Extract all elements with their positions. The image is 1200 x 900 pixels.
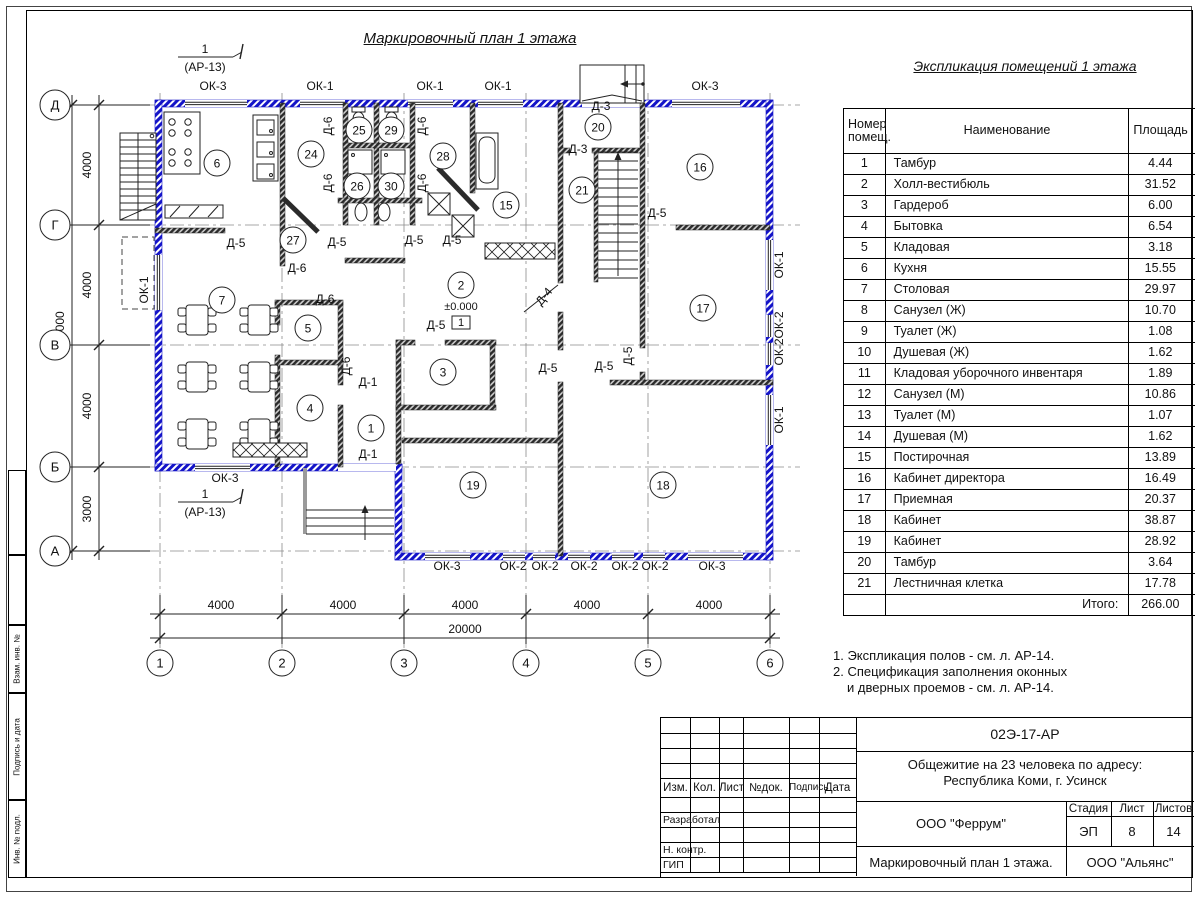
room-area-cell: 1.89 [1129,364,1192,385]
room-name-cell: Кладовая [885,238,1129,259]
schedule-row: 15Постирочная13.89 [844,448,1196,469]
cut-cell [1192,175,1195,196]
room-name-cell: Кабинет директора [885,469,1129,490]
cut-cell [1192,574,1195,595]
room-marker-number: 1 [368,422,375,436]
door-label: Д-6 [339,356,353,375]
grid-bubble-label: Б [51,460,60,475]
chair [240,324,248,332]
window-opening [478,100,523,107]
interior-wall [345,258,405,263]
tb-row-developed: Разработал [663,814,723,826]
tb-col-doc: №док. [743,782,789,794]
room-name-cell: Гардероб [885,196,1129,217]
schedule-row: 19Кабинет28.92 [844,532,1196,553]
chair [178,381,186,389]
chair [270,324,278,332]
window-label: ОК-1 [137,276,151,303]
notes: 1. Экспликация полов - см. л. АР-14.2. С… [833,648,1067,696]
door-label: Д-5 [621,346,635,365]
margin-box-podpis: Подпись и дата [8,693,26,800]
margin-box-inv: Инв. № подл. [8,800,26,878]
schedule-row: 9Туалет (Ж)1.08 [844,322,1196,343]
schedule-row: 18Кабинет38.87 [844,511,1196,532]
section-ref: (АР-13) [184,505,225,519]
chair [270,381,278,389]
tb-col-izm: Изм. [661,782,690,794]
window-opening [185,100,247,107]
cut-cell [1192,469,1195,490]
window-opening [155,255,162,310]
room-area-cell: 17.78 [1129,574,1192,595]
dim-label: 4000 [208,598,235,612]
room-name-cell: Санузел (М) [885,385,1129,406]
dining-table [248,305,270,335]
dim-label: 4000 [574,598,601,612]
interior-wall [490,340,495,410]
tb-sheet-label: Лист [1111,803,1153,815]
col-header-cut: Капо [1192,109,1195,154]
window-label: ОК-3 [434,559,461,573]
room-number-cell: 12 [844,385,886,406]
tb-sheets-label: Листов [1153,803,1194,815]
chair [208,438,216,446]
chair [240,308,248,316]
room-area-cell: 4.44 [1129,154,1192,175]
schedule-row: 5Кладовая3.18 [844,238,1196,259]
door-label: Д-5 [227,236,246,250]
room-name-cell: Кабинет [885,511,1129,532]
room-marker-number: 21 [575,184,589,198]
window-label: ОК-2 [642,559,669,573]
room-marker-number: 4 [307,402,314,416]
tb-sheet-value: 8 [1111,824,1153,839]
tb-object-line2: Республика Коми, г. Усинск [856,773,1194,788]
grid-bubble-label: 1 [156,656,163,671]
cut-cell [1192,385,1195,406]
dim-total-label: 20000 [448,622,482,636]
cut-cell [1192,238,1195,259]
room-name-cell: Туалет (М) [885,406,1129,427]
room-name-cell: Санузел (Ж) [885,301,1129,322]
room-marker-number: 24 [304,148,318,162]
tb-col-list: Лист [719,782,743,794]
window-opening [338,464,396,471]
window-label: ОК-2 [612,559,639,573]
interior-wall [155,228,225,233]
schedule-row: 4Бытовка6.54 [844,217,1196,238]
door-label: Д-6 [316,292,335,306]
schedule-title: Экспликация помещений 1 этажа [860,58,1190,74]
room-marker-number: 7 [219,294,226,308]
cut-cell [1192,343,1195,364]
chair [208,422,216,430]
door-label: Д-6 [415,116,429,135]
tb-sheets-value: 14 [1153,824,1194,839]
room-number-cell: 8 [844,301,886,322]
room-schedule-table: Номерпомещ. Наименование Площадь Капо 1Т… [843,108,1195,616]
tb-drawing-title: Маркировочный план 1 этажа. [856,855,1066,870]
room-number-cell: 11 [844,364,886,385]
interior-wall [338,405,343,467]
window-label: ОК-1 [772,406,786,433]
toilet-tank [385,107,398,112]
door-label: Д-6 [288,261,307,275]
schedule-row: 3Гардероб6.00 [844,196,1196,217]
room-area-cell: 10.86 [1129,385,1192,406]
window-opening [195,464,250,471]
schedule-row: 20Тамбур3.64 [844,553,1196,574]
porch-wall [303,468,307,534]
chair [178,324,186,332]
cut-cell [1192,532,1195,553]
cut-cell [1192,154,1195,175]
door-label: Д-5 [595,359,614,373]
tb-stage-label: Стадия [1066,803,1111,815]
window-label: ОК-2 [772,338,786,365]
room-number-cell: 19 [844,532,886,553]
room-number-cell: 16 [844,469,886,490]
interior-wall [374,103,379,225]
room-number-cell: 21 [844,574,886,595]
dining-table [186,419,208,449]
drawing-sheet: { "sheet": { "plan_title": "Маркировочны… [0,0,1200,900]
tb-doc-number: 02Э-17-АР [856,726,1194,742]
tb-object-line1: Общежитие на 23 человека по адресу: [856,757,1194,772]
window-label: ОК-1 [772,251,786,278]
room-marker-number: 17 [696,302,710,316]
cut-cell [1192,406,1195,427]
stove-burner [185,149,191,155]
washbasin [355,203,367,221]
dim-label: 4000 [80,271,94,298]
cut-cell [1192,217,1195,238]
chair [208,324,216,332]
grid-bubble-label: 6 [766,656,773,671]
tb-col-kol: Кол. [690,782,719,794]
note-line: и дверных проемов - см. л. АР-14. [833,680,1067,696]
room-marker-number: 20 [591,121,605,135]
porch-arrow [362,505,369,513]
note-line: 1. Экспликация полов - см. л. АР-14. [833,648,1067,664]
room-number-cell: 14 [844,427,886,448]
room-marker-number: 30 [384,180,398,194]
interior-wall [402,438,560,443]
room-name-cell: Душевая (Ж) [885,343,1129,364]
schedule-row: 1Тамбур4.44 [844,154,1196,175]
grid-bubble-label: Д [51,98,60,113]
room-name-cell: Туалет (Ж) [885,322,1129,343]
room-name-cell: Холл-вестибюль [885,175,1129,196]
note-line: 2. Спецификация заполнения оконных [833,664,1067,680]
cut-cell [1192,301,1195,322]
toilet-tank [352,107,365,112]
room-marker-number: 3 [440,366,447,380]
window-label: ОК-1 [307,79,334,93]
section-number: 1 [202,487,209,501]
room-area-cell: 3.18 [1129,238,1192,259]
room-marker-number: 2 [458,279,465,293]
schedule-row: 14Душевая (М)1.62 [844,427,1196,448]
cut-cell [1192,490,1195,511]
schedule-row: 16Кабинет директора16.49 [844,469,1196,490]
room-area-cell: 1.62 [1129,343,1192,364]
margin-box-empty-2 [8,555,26,625]
window-label: ОК-2 [571,559,598,573]
room-marker-number: 19 [466,479,480,493]
room-number-cell: 17 [844,490,886,511]
cut-cell [1192,322,1195,343]
col-header-number: Номерпомещ. [844,109,886,154]
title-block: Изм. Кол. Лист №док. Подпись Дата Разраб… [660,717,1193,878]
tb-row-gip: ГИП [663,859,723,871]
window-label: ОК-3 [699,559,726,573]
room-area-cell: 1.62 [1129,427,1192,448]
plan-title: Маркировочный план 1 этажа [330,30,610,47]
col-header-area: Площадь [1129,109,1192,154]
schedule-row: 21Лестничная клетка17.78 [844,574,1196,595]
room-marker-number: 27 [286,234,300,248]
stove-burner [185,119,191,125]
interior-wall [640,103,645,348]
interior-wall [594,148,598,282]
room-area-cell: 31.52 [1129,175,1192,196]
room-area-cell: 1.07 [1129,406,1192,427]
dining-table [186,305,208,335]
window-label: ОК-2 [532,559,559,573]
floor-hatch [233,443,307,457]
margin-box-empty-1 [8,470,26,555]
room-number-cell: 9 [844,322,886,343]
room-schedule: Номерпомещ. Наименование Площадь Капо 1Т… [843,108,1195,616]
schedule-row: 10Душевая (Ж)1.62 [844,343,1196,364]
interior-wall-diagonal [283,198,318,232]
schedule-row: 17Приемная20.37 [844,490,1196,511]
window-label: ОК-2 [500,559,527,573]
cut-cell [1192,448,1195,469]
dim-label: 4000 [80,151,94,178]
grid-bubble-label: Г [51,218,58,233]
section-tick [240,44,243,59]
room-area-cell: 1.08 [1129,322,1192,343]
dim-label: 4000 [696,598,723,612]
door-label: Д-6 [415,173,429,192]
room-marker-number: 5 [305,322,312,336]
chair [240,365,248,373]
exterior-wall [395,464,402,560]
room-name-cell: Тамбур [885,154,1129,175]
room-number-cell: 20 [844,553,886,574]
cut-cell [1192,364,1195,385]
stove-burner [169,149,175,155]
tb-col-sign: Подпись [789,782,819,793]
dim-label: 3000 [80,495,94,522]
washbasin [378,203,390,221]
interior-wall [343,143,415,148]
interior-wall [610,380,773,385]
grid-bubble-label: А [51,544,60,559]
window-label: ОК-3 [200,79,227,93]
door-label: Д-5 [405,233,424,247]
room-number-cell: 15 [844,448,886,469]
cut-cell [1192,259,1195,280]
door-label: Д-1 [359,375,378,389]
room-number-cell: 3 [844,196,886,217]
stove-burner [169,160,175,166]
schedule-row: 11Кладовая уборочного инвентаря1.89 [844,364,1196,385]
room-marker-number: 25 [352,124,366,138]
elevation-mark: ±0.000 [444,301,478,313]
chair [208,365,216,373]
room-number-cell: 5 [844,238,886,259]
col-header-name: Наименование [885,109,1129,154]
grid-bubble-label: 3 [400,656,407,671]
schedule-row: 2Холл-вестибюль31.52 [844,175,1196,196]
interior-wall [396,405,496,410]
interior-wall [275,360,343,365]
window-label: ОК-1 [417,79,444,93]
tb-col-date: Дата [819,782,856,794]
interior-wall [445,340,496,345]
chair [270,308,278,316]
door-label: Д-3 [569,142,588,156]
dim-label: 4000 [452,598,479,612]
total-value-cell: 266.00 [1129,595,1192,616]
interior-wall [338,198,422,203]
room-name-cell: Лестничная клетка [885,574,1129,595]
cut-cell [1192,280,1195,301]
room-area-cell: 6.54 [1129,217,1192,238]
cut-cell [1192,511,1195,532]
dining-table [186,362,208,392]
tb-stage-value: ЭП [1066,824,1111,839]
chair [240,381,248,389]
room-number-cell: 1 [844,154,886,175]
chair [178,438,186,446]
cut-cell [1192,553,1195,574]
chair [178,308,186,316]
room-number-cell: 7 [844,280,886,301]
chair [208,381,216,389]
room-marker-number: 16 [693,161,707,175]
room-area-cell: 29.97 [1129,280,1192,301]
chair [178,422,186,430]
total-label-cell: Итого: [885,595,1129,616]
room-area-cell: 16.49 [1129,469,1192,490]
room-area-cell: 13.89 [1129,448,1192,469]
room-number-cell: 13 [844,406,886,427]
room-number-cell: 4 [844,217,886,238]
section-number: 1 [202,42,209,56]
room-marker-number: 29 [384,124,398,138]
room-area-cell: 20.37 [1129,490,1192,511]
room-name-cell: Постирочная [885,448,1129,469]
room-area-cell: 15.55 [1129,259,1192,280]
floor-hatch [485,243,555,259]
interior-wall [343,103,348,225]
stove-burner [185,160,191,166]
margin-box-vzam: Взам. инв. № [8,625,26,693]
schedule-row: 6Кухня15.55 [844,259,1196,280]
door-label: Д-1 [359,447,378,461]
interior-wall [558,312,563,350]
window-label: ОК-3 [692,79,719,93]
window-label: ОК-1 [485,79,512,93]
room-name-cell: Бытовка [885,217,1129,238]
room-marker-number: 18 [656,479,670,493]
schedule-row: 13Туалет (М)1.07 [844,406,1196,427]
door-label: Д-3 [592,99,611,113]
door-label: Д-6 [321,173,335,192]
schedule-row: 7Столовая29.97 [844,280,1196,301]
dim-label: 4000 [330,598,357,612]
interior-wall [470,103,475,193]
room-name-cell: Кухня [885,259,1129,280]
room-name-cell: Столовая [885,280,1129,301]
tb-contractor: ООО "Альянс" [1066,855,1194,870]
door-label: Д-5 [427,318,446,332]
window-opening [300,100,345,107]
interior-wall [558,103,563,283]
room-name-cell: Кладовая уборочного инвентаря [885,364,1129,385]
room-area-cell: 38.87 [1129,511,1192,532]
interior-wall [558,382,563,556]
room-marker-number: 15 [499,199,513,213]
interior-wall [676,225,770,230]
cut-cell [1192,196,1195,217]
window-label: ОК-2 [772,311,786,338]
dim-label: 4000 [80,392,94,419]
tb-designer: ООО "Феррум" [856,816,1066,831]
floor-type-mark: 1 [458,317,464,329]
door-label: Д-5 [328,235,347,249]
dining-table [248,362,270,392]
room-area-cell: 28.92 [1129,532,1192,553]
interior-wall [396,340,415,345]
room-area-cell: 10.70 [1129,301,1192,322]
room-name-cell: Тамбур [885,553,1129,574]
chair [270,365,278,373]
stove-burner [185,130,191,136]
door-label: Д-4 [533,284,556,308]
room-name-cell: Душевая (М) [885,427,1129,448]
section-ref: (АР-13) [184,60,225,74]
stove-burner [169,119,175,125]
cut-cell [1192,427,1195,448]
room-area-cell: 6.00 [1129,196,1192,217]
room-number-cell: 6 [844,259,886,280]
door-label: Д-5 [648,206,667,220]
interior-wall [396,340,401,464]
room-number-cell: 18 [844,511,886,532]
grid-bubble-label: 2 [278,656,285,671]
grid-bubble-label: 4 [522,656,529,671]
room-number-cell: 10 [844,343,886,364]
grid-bubble-label: В [51,338,60,353]
room-area-cell: 3.64 [1129,553,1192,574]
schedule-row: 12Санузел (М)10.86 [844,385,1196,406]
door-label: Д-5 [443,233,462,247]
section-tick [240,489,243,504]
chair [178,365,186,373]
chair [270,422,278,430]
schedule-row: 8Санузел (Ж)10.70 [844,301,1196,322]
door-label: Д-6 [321,116,335,135]
room-marker-number: 6 [214,157,221,171]
window-label: ОК-3 [212,471,239,485]
tb-row-ncontrol: Н. контр. [663,844,723,856]
room-number-cell: 2 [844,175,886,196]
